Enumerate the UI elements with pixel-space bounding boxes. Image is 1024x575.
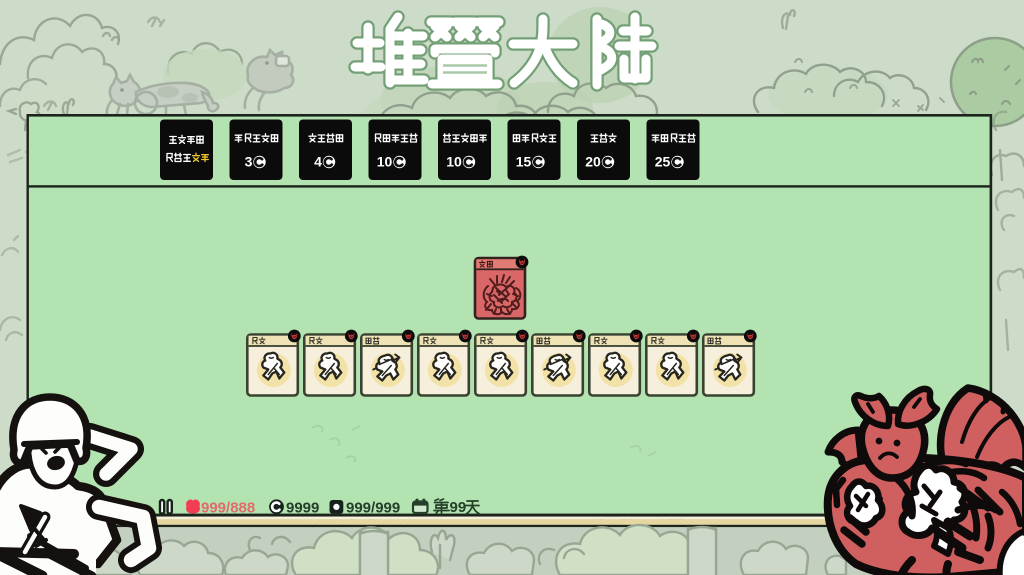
svg-text:15: 15 bbox=[516, 154, 532, 170]
svg-text:10: 10 bbox=[446, 154, 462, 170]
svg-text:4: 4 bbox=[314, 154, 322, 170]
svg-text:25: 25 bbox=[655, 154, 671, 170]
svg-text:20: 20 bbox=[585, 154, 601, 170]
svg-text:99: 99 bbox=[450, 499, 467, 516]
svg-text:999/888: 999/888 bbox=[201, 500, 255, 517]
svg-text:3: 3 bbox=[245, 154, 253, 170]
svg-text:10: 10 bbox=[377, 154, 393, 170]
svg-text:999/999: 999/999 bbox=[346, 500, 400, 517]
svg-text:9999: 9999 bbox=[286, 500, 319, 517]
